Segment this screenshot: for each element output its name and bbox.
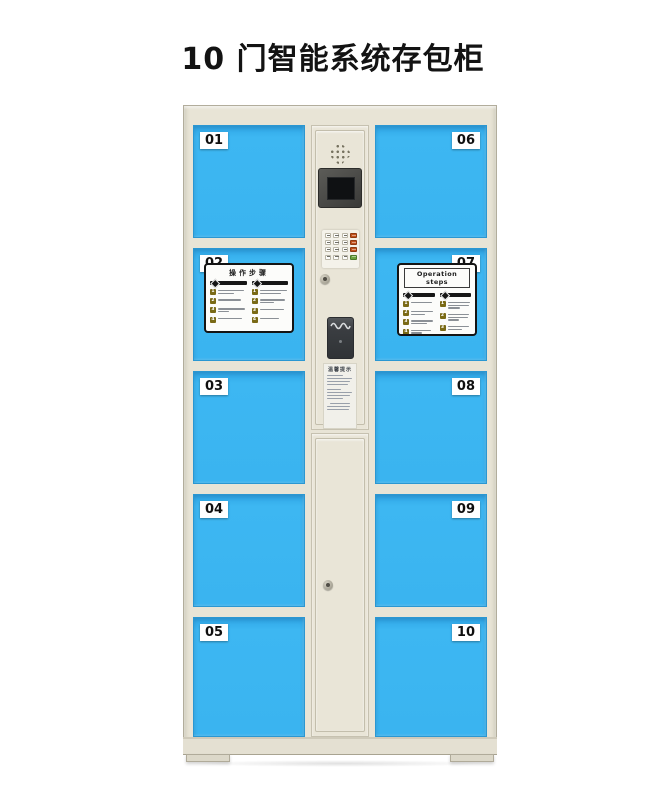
notice-text-line — [327, 395, 350, 396]
keypad-key — [333, 233, 339, 238]
step-row: 2 — [403, 310, 435, 316]
door-number-label: 10 — [452, 624, 480, 641]
step-row: 4 — [403, 329, 435, 335]
cabinet-base — [183, 737, 497, 755]
step-text-lines — [260, 317, 289, 321]
step-row: 4 — [210, 317, 247, 323]
keypad-key — [342, 233, 348, 238]
keypad — [322, 230, 359, 268]
step-text-lines — [448, 301, 472, 310]
door-number-label: 06 — [452, 132, 480, 149]
keypad-key — [325, 240, 331, 245]
locker-door-05: 05 — [193, 617, 305, 737]
locker-door-07: 07 Operation steps 1 2 3 4 1 2 3 — [375, 248, 487, 361]
notice-text-line — [327, 392, 352, 393]
sticker-title: 操作步骤 — [206, 268, 292, 278]
keypad-key — [333, 240, 339, 245]
step-number: 3 — [440, 325, 446, 331]
step-number: 2 — [252, 298, 258, 304]
keyhole-lock-icon — [320, 274, 330, 284]
operation-steps-sticker-chinese: 操作步骤 1 2 3 4 1 2 3 4 — [204, 263, 294, 333]
keyhole-lock-icon — [323, 580, 333, 590]
door-number-label: 04 — [200, 501, 228, 518]
step-text-lines — [260, 298, 289, 304]
step-row: 2 — [210, 298, 247, 304]
locker-door-08: 08 — [375, 371, 487, 484]
notice-text-line — [327, 381, 350, 382]
keypad-key — [342, 255, 348, 260]
step-row: 1 — [210, 289, 247, 295]
step-number: 4 — [210, 317, 216, 323]
section-bar — [210, 281, 247, 285]
step-number: 1 — [252, 289, 258, 295]
cabinet-foot-left — [186, 754, 230, 762]
step-text-lines — [218, 289, 247, 295]
step-number: 3 — [403, 319, 409, 325]
step-row: 3 — [210, 307, 247, 313]
control-panel: 温馨提示 — [311, 125, 369, 430]
step-text-lines — [218, 307, 247, 313]
step-text-lines — [448, 325, 472, 331]
keypad-keys — [325, 233, 357, 260]
step-text-lines — [260, 289, 289, 295]
step-row: 1 — [252, 289, 289, 295]
step-row: 1 — [403, 301, 435, 307]
operation-steps-sticker-english: Operation steps 1 2 3 4 1 2 3 — [397, 263, 477, 336]
sticker-column-right: 1 2 3 4 — [252, 280, 289, 326]
notice-label: 温馨提示 — [323, 363, 357, 429]
notice-text-line — [327, 384, 348, 385]
door-number-label: 01 — [200, 132, 228, 149]
notice-text-line — [327, 409, 349, 410]
page: 10 门智能系统存包柜 01 02 操作步骤 1 2 3 4 — [0, 0, 650, 790]
step-number: 3 — [210, 307, 216, 313]
step-text-lines — [260, 308, 289, 312]
keypad-key — [342, 240, 348, 245]
sticker-columns: 1 2 3 4 1 2 3 4 — [206, 278, 292, 326]
step-row: 3 — [252, 308, 289, 314]
locker-door-01: 01 — [193, 125, 305, 238]
step-number: 2 — [210, 298, 216, 304]
locker-door-03: 03 — [193, 371, 305, 484]
locker-door-04: 04 — [193, 494, 305, 607]
notice-text-line — [327, 375, 343, 376]
step-number: 1 — [210, 289, 216, 295]
step-number: 2 — [440, 313, 446, 319]
keypad-key-red — [350, 240, 356, 245]
ground-shadow — [193, 760, 487, 767]
section-bar — [403, 293, 435, 297]
step-number: 1 — [440, 301, 446, 307]
sticker-column-left: 1 2 3 4 — [403, 292, 435, 336]
keypad-key-green — [350, 255, 356, 260]
sticker-title: Operation steps — [404, 268, 470, 288]
locker-door-06: 06 — [375, 125, 487, 238]
notice-text-line — [327, 378, 352, 379]
keypad-key-red — [350, 247, 356, 252]
step-number: 2 — [403, 310, 409, 316]
step-text-lines — [218, 298, 247, 302]
lcd-screen-display — [327, 177, 355, 200]
step-row: 2 — [440, 313, 472, 322]
page-title: 10 门智能系统存包柜 — [8, 34, 650, 78]
smart-locker-cabinet: 01 02 操作步骤 1 2 3 4 1 2 — [183, 105, 497, 757]
cabinet-foot-right — [450, 754, 494, 762]
step-text-lines — [411, 310, 435, 316]
notice-text-line — [330, 403, 350, 404]
lower-center-panel — [311, 433, 369, 737]
door-number-label: 05 — [200, 624, 228, 641]
sticker-columns: 1 2 3 4 1 2 3 — [399, 290, 475, 336]
step-number: 4 — [403, 329, 409, 335]
locker-door-10: 10 — [375, 617, 487, 737]
barcode-scanner-window — [327, 317, 354, 359]
step-text-lines — [411, 301, 435, 305]
step-number: 1 — [403, 301, 409, 307]
keypad-key-red — [350, 233, 356, 238]
step-text-lines — [448, 313, 472, 322]
keypad-key — [325, 247, 331, 252]
lcd-screen — [318, 168, 362, 208]
keypad-key — [333, 247, 339, 252]
step-text-lines — [218, 317, 247, 321]
sticker-column-right: 1 2 3 — [440, 292, 472, 336]
door-number-label: 08 — [452, 378, 480, 395]
step-row: 3 — [403, 319, 435, 325]
notice-text-line — [327, 398, 343, 399]
sticker-column-left: 1 2 3 4 — [210, 280, 247, 326]
section-bar — [252, 281, 289, 285]
step-text-lines — [411, 319, 435, 325]
locker-door-02: 02 操作步骤 1 2 3 4 1 2 3 — [193, 248, 305, 361]
step-number: 3 — [252, 308, 258, 314]
scanner-wave-icon — [330, 321, 351, 330]
keypad-key — [325, 233, 331, 238]
step-text-lines — [411, 329, 435, 335]
step-row: 4 — [252, 317, 289, 323]
door-number-label: 09 — [452, 501, 480, 518]
notice-label-title: 温馨提示 — [327, 367, 353, 373]
keypad-key — [342, 247, 348, 252]
step-number: 4 — [252, 317, 258, 323]
step-row: 1 — [440, 301, 472, 310]
keypad-key — [333, 255, 339, 260]
step-row: 2 — [252, 298, 289, 304]
section-bar — [440, 293, 472, 297]
keypad-key — [325, 255, 331, 260]
notice-text-line — [327, 406, 350, 407]
locker-door-09: 09 — [375, 494, 487, 607]
door-number-label: 03 — [200, 378, 228, 395]
notice-text-line — [327, 389, 341, 390]
step-row: 3 — [440, 325, 472, 331]
